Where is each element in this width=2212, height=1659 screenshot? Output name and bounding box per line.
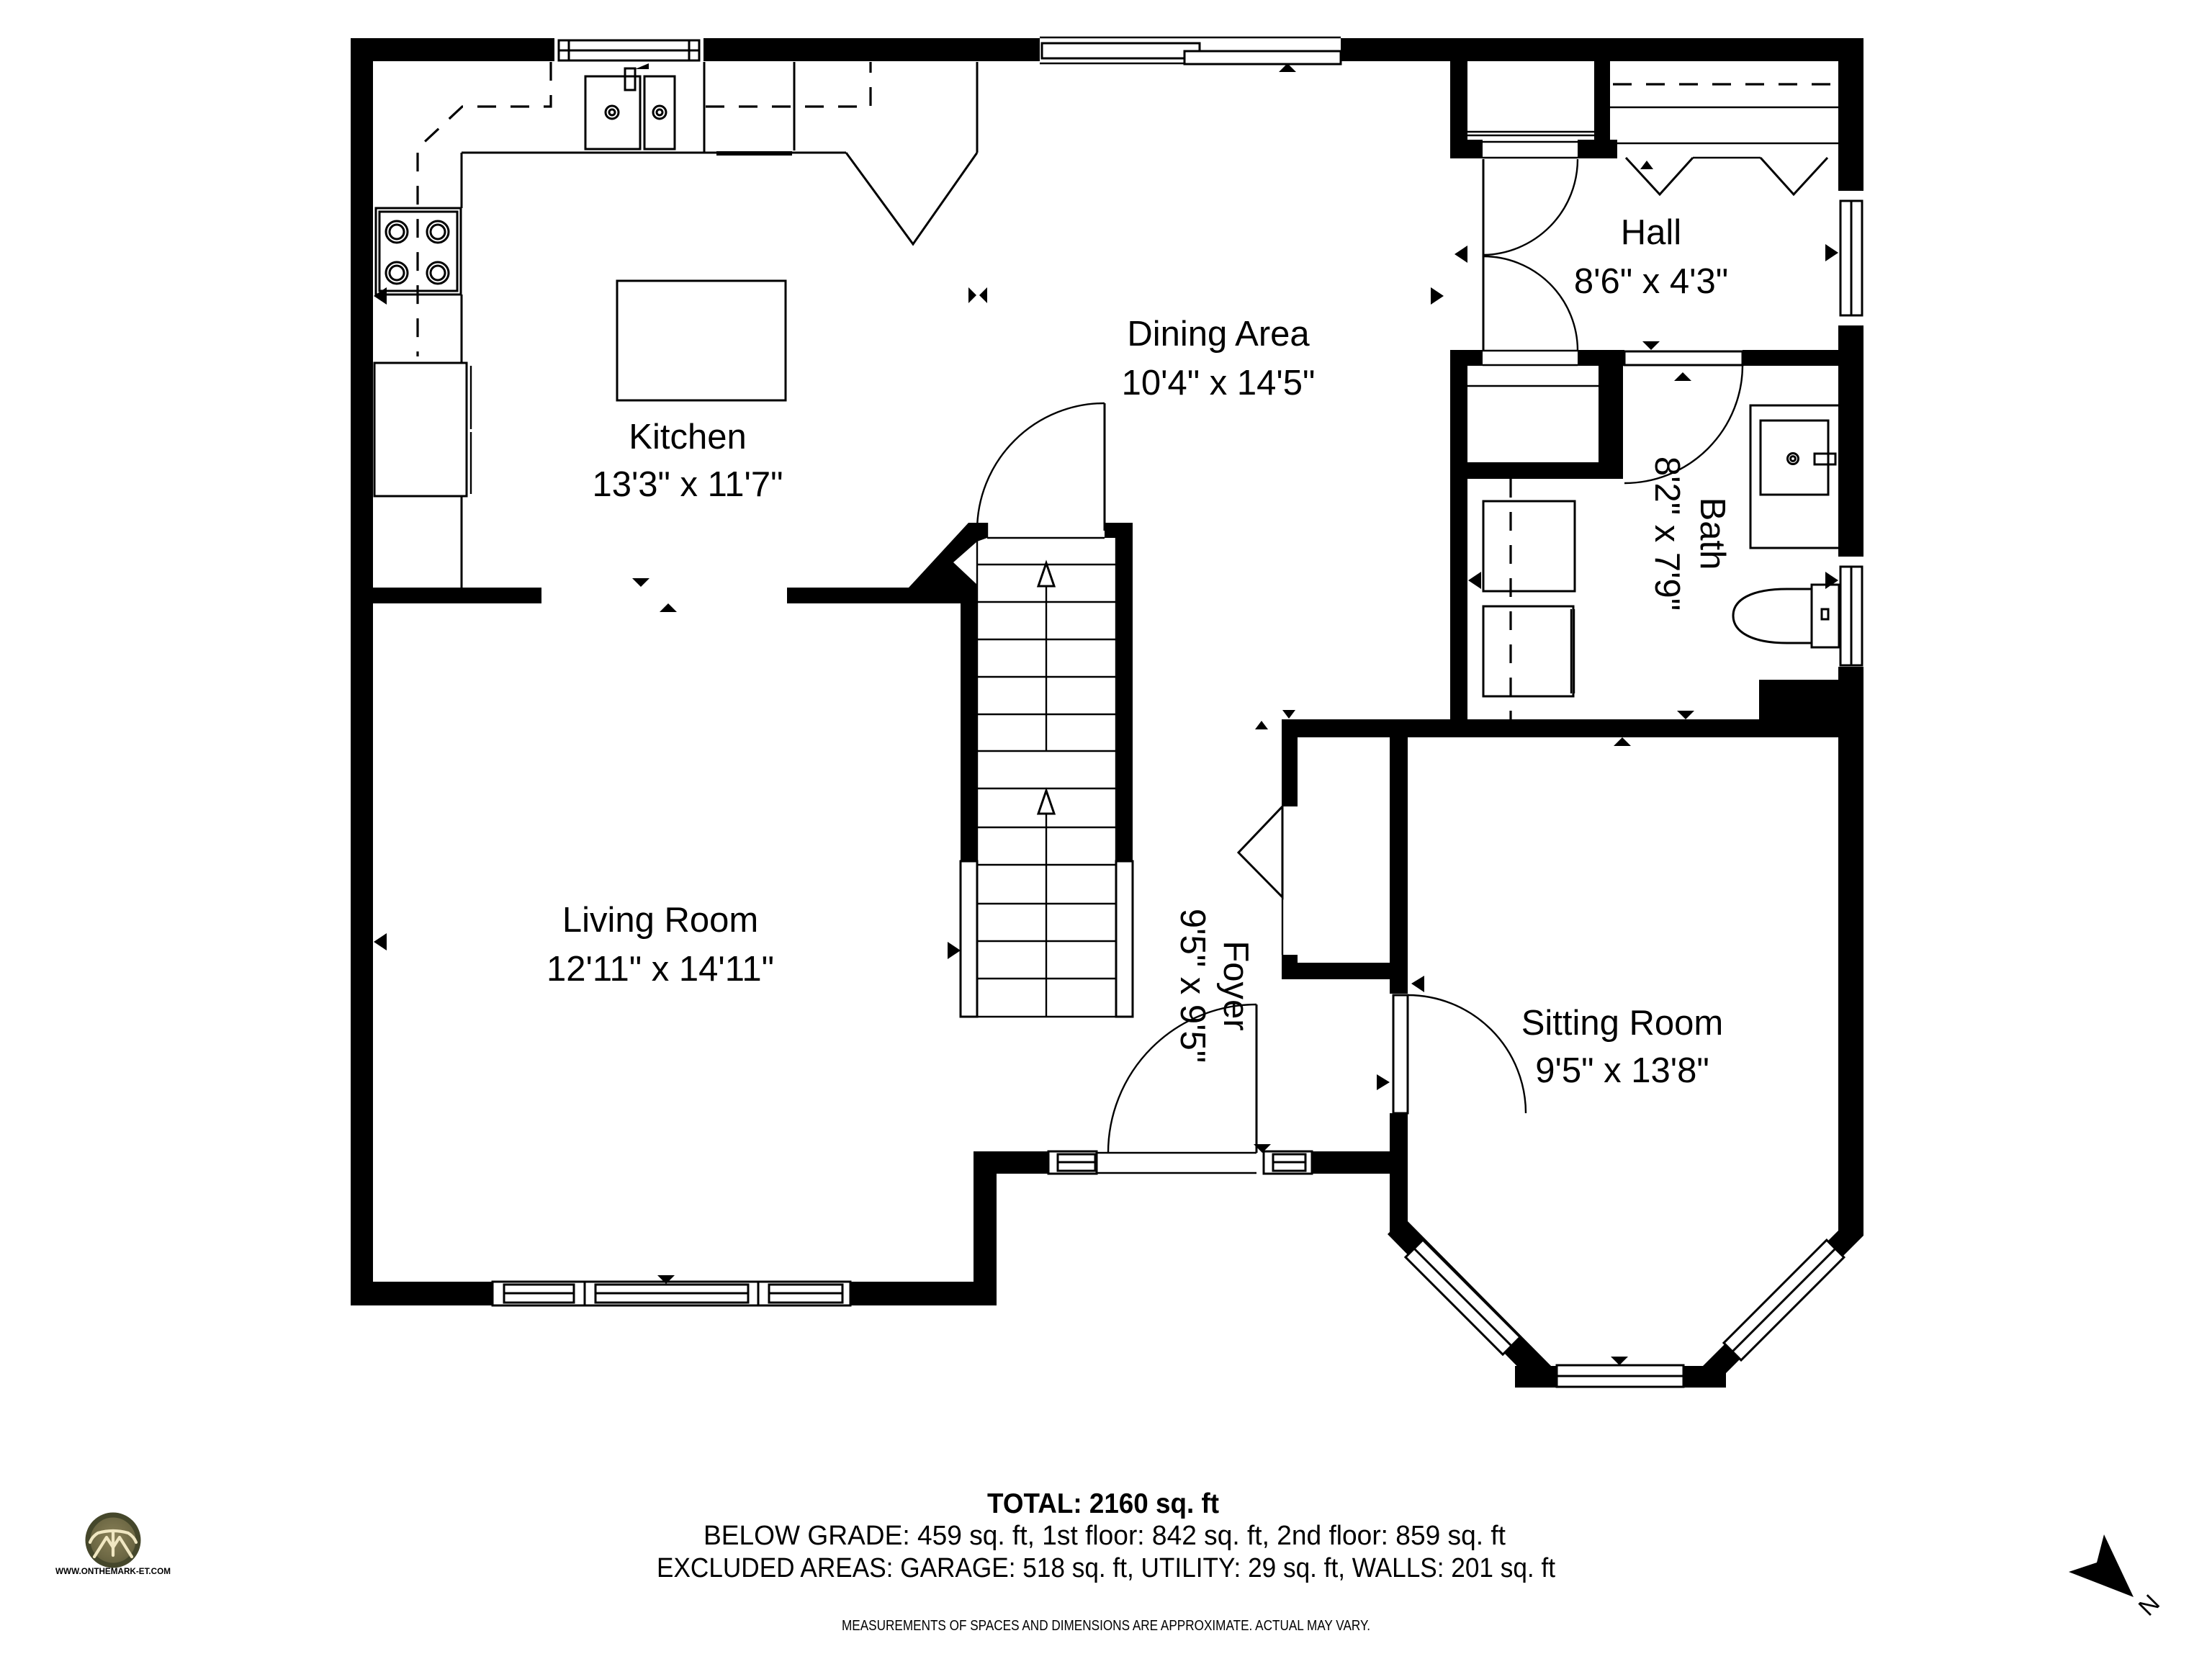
svg-text:Kitchen: Kitchen	[629, 418, 746, 457]
svg-text:MEASUREMENTS OF SPACES AND DIM: MEASUREMENTS OF SPACES AND DIMENSIONS AR…	[842, 1618, 1370, 1634]
svg-text:8'2" x 7'9": 8'2" x 7'9"	[1647, 457, 1686, 611]
svg-text:Sitting Room: Sitting Room	[1521, 1004, 1724, 1043]
svg-text:9'5" x 13'8": 9'5" x 13'8"	[1535, 1051, 1709, 1090]
svg-text:Living Room: Living Room	[562, 901, 758, 940]
svg-text:Hall: Hall	[1621, 213, 1681, 252]
svg-text:13'3" x 11'7": 13'3" x 11'7"	[592, 465, 783, 504]
svg-text:EXCLUDED AREAS: GARAGE: 518 sq: EXCLUDED AREAS: GARAGE: 518 sq. ft, UTIL…	[657, 1553, 1555, 1583]
svg-text:Bath: Bath	[1693, 498, 1732, 570]
svg-text:Foyer: Foyer	[1216, 940, 1255, 1030]
svg-text:9'5" x 9'5": 9'5" x 9'5"	[1173, 909, 1212, 1063]
svg-text:Dining Area: Dining Area	[1127, 315, 1310, 354]
svg-text:10'4" x 14'5": 10'4" x 14'5"	[1122, 364, 1316, 403]
svg-text:WWW.ONTHEMARK-ET.COM: WWW.ONTHEMARK-ET.COM	[55, 1566, 171, 1576]
svg-text:12'11" x 14'11": 12'11" x 14'11"	[547, 950, 774, 989]
svg-text:TOTAL: 2160 sq. ft: TOTAL: 2160 sq. ft	[987, 1488, 1219, 1519]
svg-text:BELOW GRADE: 459 sq. ft, 1st f: BELOW GRADE: 459 sq. ft, 1st floor: 842 …	[703, 1521, 1506, 1551]
svg-text:8'6" x 4'3": 8'6" x 4'3"	[1574, 262, 1728, 301]
